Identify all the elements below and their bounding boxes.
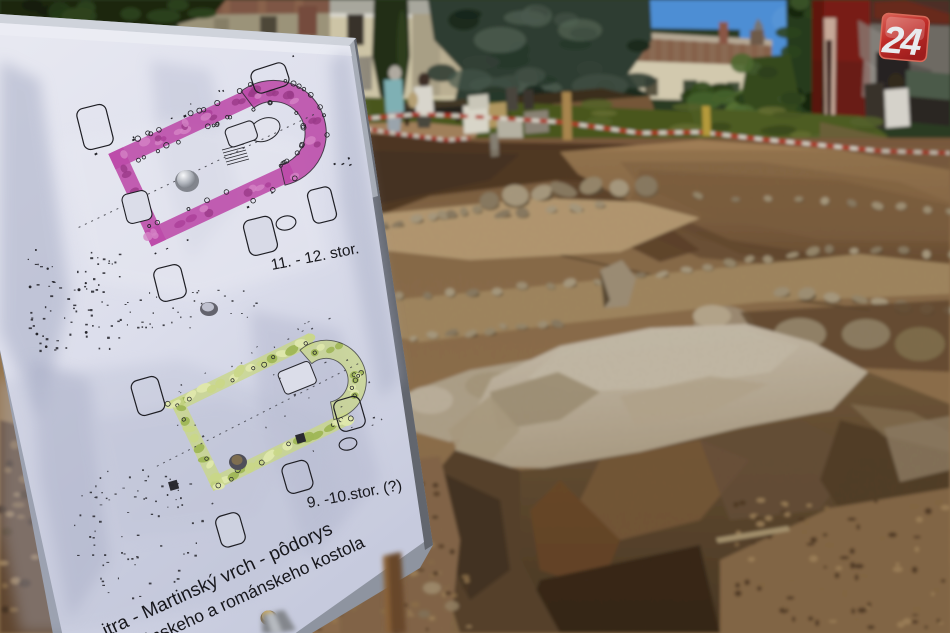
svg-text:24: 24 [880, 19, 924, 64]
